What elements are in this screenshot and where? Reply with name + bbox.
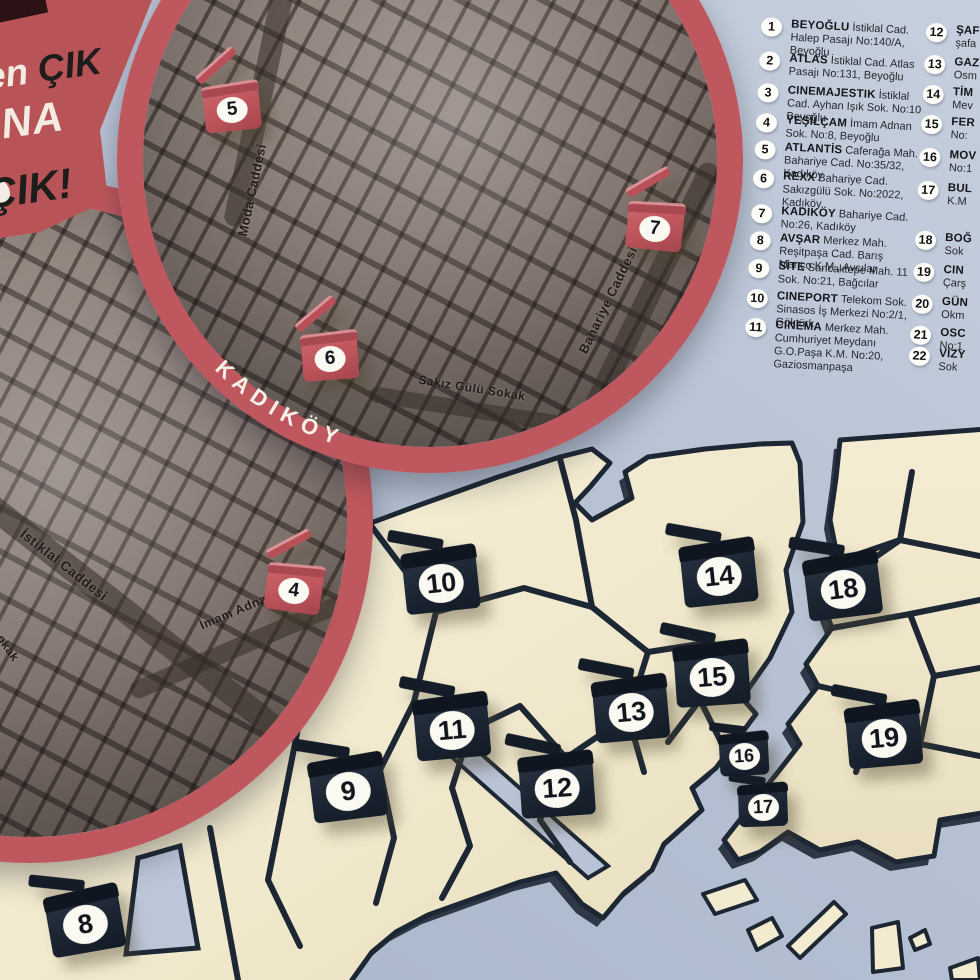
clapperboard-icon: 18 bbox=[803, 552, 884, 622]
legend-item-12: 12ŞAFşafa bbox=[925, 23, 980, 53]
clapperboard-icon: 4 bbox=[263, 562, 325, 615]
clapperboard-icon: 12 bbox=[518, 753, 596, 819]
clapperboard-icon: 14 bbox=[679, 540, 759, 608]
map-marker-17: 17 bbox=[738, 785, 788, 828]
legend-item-22: 22VİZYSok bbox=[908, 346, 979, 376]
legend-number-badge: 7 bbox=[751, 204, 773, 224]
clapperboard-icon: 8 bbox=[43, 886, 126, 959]
map-marker-15: 15 bbox=[673, 642, 751, 708]
map-marker-18: 18 bbox=[803, 552, 884, 622]
clapperboard-icon: 13 bbox=[591, 676, 670, 743]
map-marker-5: 5 bbox=[202, 82, 263, 134]
map-marker-9: 9 bbox=[308, 754, 389, 824]
slogan-line-3: ÇIK! bbox=[0, 162, 75, 216]
cinema-legend: 1BEYOĞLUİstiklal Cad. Halep Pasajı No:14… bbox=[742, 8, 980, 400]
legend-number-badge: 16 bbox=[919, 147, 941, 167]
legend-number-badge: 13 bbox=[924, 55, 946, 75]
legend-item-11: 11CINEMAMerkez Mah. Cumhuriyet Meydanı G… bbox=[743, 318, 915, 379]
legend-number-badge: 20 bbox=[911, 294, 933, 314]
legend-number-badge: 6 bbox=[753, 169, 775, 189]
legend-number-badge: 21 bbox=[910, 325, 932, 345]
clapperboard-icon: 16 bbox=[718, 733, 769, 777]
map-marker-7: 7 bbox=[625, 201, 686, 253]
legend-item-20: 20GÜNOkm bbox=[911, 294, 980, 324]
map-marker-16: 16 bbox=[718, 733, 769, 777]
clapperboard-icon: 17 bbox=[738, 785, 788, 828]
clapperboard-icon: 10 bbox=[401, 547, 481, 615]
legend-number-badge: 15 bbox=[921, 115, 943, 135]
legend-number-badge: 3 bbox=[757, 83, 779, 103]
legend-number-badge: 10 bbox=[746, 289, 768, 309]
clapperboard-icon: 5 bbox=[202, 82, 263, 134]
legend-number-badge: 12 bbox=[925, 23, 947, 43]
legend-number-badge: 2 bbox=[759, 51, 781, 71]
slogan-line-2: MANA bbox=[0, 95, 66, 155]
legend-item-18: 18BOĞSok bbox=[914, 230, 980, 260]
legend-item-16: 16MOVNo:1 bbox=[919, 147, 980, 177]
legend-number-badge: 8 bbox=[749, 231, 771, 251]
map-marker-13: 13 bbox=[591, 676, 670, 743]
legend-item-13: 13GAZOsm bbox=[923, 55, 980, 85]
cinema-map-poster: KADIKÖY Moda Caddesi Sakız Gülü Sokak Ba… bbox=[0, 0, 980, 980]
banner-corner-shade bbox=[0, 0, 48, 23]
legend-item-14: 14TİMMev bbox=[922, 85, 980, 115]
legend-number-badge: 19 bbox=[913, 262, 935, 282]
legend-item-15: 15FERNo: bbox=[920, 115, 980, 145]
clapperboard-icon: 6 bbox=[300, 332, 359, 382]
map-marker-6: 6 bbox=[300, 332, 359, 382]
clapperboard-icon: 9 bbox=[308, 754, 389, 824]
legend-number-badge: 18 bbox=[915, 230, 937, 250]
map-marker-19: 19 bbox=[844, 702, 923, 769]
slogan-line-1: den ÇIK bbox=[0, 42, 104, 98]
clapperboard-icon: 7 bbox=[625, 201, 686, 253]
legend-number-badge: 14 bbox=[922, 85, 944, 105]
map-marker-4: 4 bbox=[263, 562, 325, 615]
map-marker-11: 11 bbox=[412, 694, 491, 761]
clapperboard-icon: 11 bbox=[412, 694, 491, 761]
legend-item-19: 19CINÇarş bbox=[913, 262, 980, 292]
map-marker-8: 8 bbox=[43, 886, 126, 959]
map-marker-14: 14 bbox=[679, 540, 759, 608]
map-marker-10: 10 bbox=[401, 547, 481, 615]
legend-item-17: 17BULK.M bbox=[917, 180, 980, 210]
legend-number-badge: 11 bbox=[745, 318, 767, 338]
legend-number-badge: 5 bbox=[754, 140, 776, 160]
map-marker-12: 12 bbox=[518, 753, 596, 819]
legend-number-badge: 22 bbox=[909, 346, 931, 366]
legend-number-badge: 17 bbox=[917, 180, 939, 200]
legend-number-badge: 9 bbox=[748, 259, 770, 279]
princes-islands bbox=[703, 880, 980, 980]
clapperboard-icon: 15 bbox=[673, 642, 751, 708]
legend-number-badge: 1 bbox=[761, 17, 783, 37]
clapperboard-icon: 19 bbox=[844, 702, 923, 769]
legend-number-badge: 4 bbox=[756, 113, 778, 133]
